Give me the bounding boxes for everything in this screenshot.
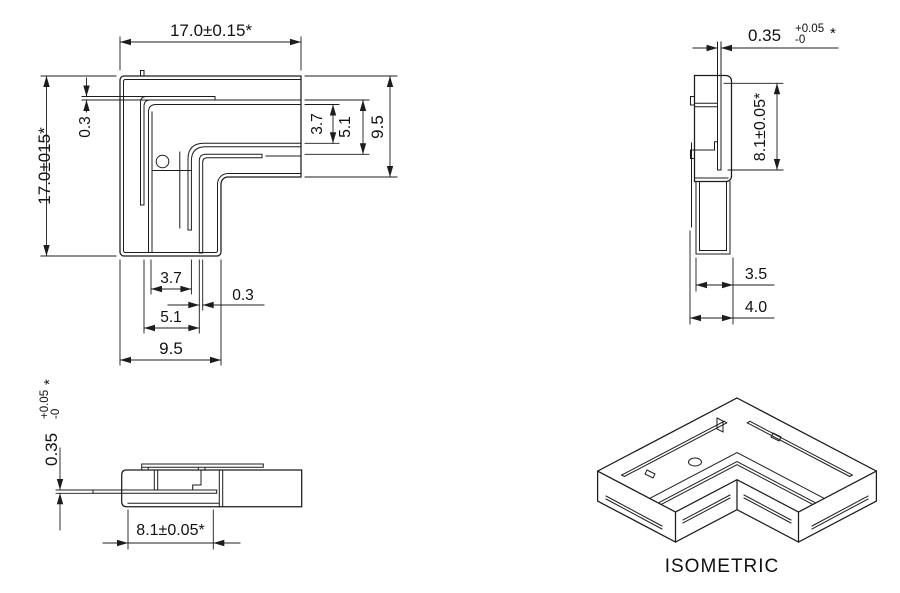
dim-front-bottom-slot: 0.3 (232, 287, 254, 304)
iso-mounting-hole (689, 458, 702, 466)
inner-wall-lines (149, 105, 302, 253)
arrowhead (43, 76, 49, 87)
arrowhead (722, 282, 733, 288)
arrowhead (57, 493, 63, 504)
arrowhead (774, 83, 780, 94)
dim-front-bottom-mid: 5.1 (160, 309, 182, 326)
arrowhead (696, 282, 707, 288)
mounting-hole (156, 155, 169, 168)
arrowhead (290, 39, 301, 45)
bottom-part-outline (122, 470, 302, 507)
arrowhead (330, 132, 336, 143)
dim-side-pin-star: * (830, 25, 836, 42)
dim-front-bottom-outer: 9.5 (159, 339, 183, 358)
iso-silhouette (598, 398, 877, 542)
arrowhead (57, 479, 63, 490)
arrowhead (360, 143, 366, 154)
dim-bottom-pin: 0.35 +0.05 -0 * (39, 379, 62, 466)
arrowhead (774, 159, 780, 170)
arrowhead (213, 540, 224, 546)
dim-front-width-top: 17.0±0.15* (170, 21, 253, 40)
arrowhead (43, 245, 49, 256)
arrowhead (330, 105, 336, 116)
arrowhead (188, 302, 199, 308)
arrowhead (360, 100, 366, 111)
bottom-view: 0.35 +0.05 -0 * 8.1±0.05* (39, 379, 302, 549)
dim-bottom-pin-tol-minus: -0 (50, 409, 62, 419)
arrowhead (83, 86, 89, 97)
arrowhead (387, 76, 393, 87)
arrowhead (203, 302, 214, 308)
front-view: 17.0±0.15* 17.0±015* 0.3 3.7 5.1 9.5 3.7… (35, 21, 397, 365)
side-part-details (691, 42, 731, 254)
side-view: 0.35 +0.05 -0 * 8.1±0.05* 3.5 4.0 (690, 23, 838, 324)
bottom-extension-lines (56, 490, 213, 549)
iso-top-edges (598, 471, 877, 542)
arrowhead (210, 357, 221, 363)
arrowhead (144, 325, 155, 331)
part-outline (120, 76, 301, 256)
dim-front-slot-left: 0.3 (77, 116, 94, 138)
arrowhead (721, 45, 732, 51)
arrowhead (180, 286, 191, 292)
engineering-drawing: 17.0±0.15* 17.0±015* 0.3 3.7 5.1 9.5 3.7… (0, 0, 900, 593)
dim-front-right-inner: 3.7 (309, 113, 326, 135)
front-arrowheads (43, 39, 393, 363)
arrowhead (83, 100, 89, 111)
arrowhead (707, 45, 718, 51)
isometric-view: ISOMETRIC (598, 398, 877, 577)
dim-side-width-inner: 3.5 (745, 266, 767, 283)
dim-front-height-left: 17.0±015* (35, 127, 54, 205)
side-extension-lines (690, 83, 783, 324)
arrowhead (690, 315, 701, 321)
corner-slot-lines (180, 152, 301, 253)
dim-front-right-mid: 5.1 (337, 116, 354, 138)
arrowhead (120, 357, 131, 363)
arrowhead (188, 325, 199, 331)
dim-front-bottom-inner: 3.7 (160, 270, 182, 287)
arrowhead (722, 315, 733, 321)
isometric-label: ISOMETRIC (665, 556, 780, 577)
front-extension-lines (41, 37, 397, 365)
dim-front-right-outer: 9.5 (368, 115, 387, 139)
dim-side-pin-tol-minus: -0 (795, 34, 805, 46)
arrowhead (120, 39, 131, 45)
dim-bottom-pin-star: * (41, 379, 58, 385)
dim-side-height: 8.1±0.05* (752, 93, 769, 161)
dim-bottom-pin-value: 0.35 (42, 433, 61, 466)
dim-bottom-width: 8.1±0.05* (136, 522, 204, 539)
side-part-outline (695, 76, 732, 182)
arrowhead (387, 166, 393, 177)
dim-side-width-outer: 4.0 (745, 299, 767, 316)
front-dimension-lines (47, 42, 391, 360)
engineering-drawing-page: 17.0±0.15* 17.0±015* 0.3 3.7 5.1 9.5 3.7… (0, 0, 900, 593)
arrowhead (117, 540, 128, 546)
dim-side-pin-value: 0.35 (748, 26, 781, 45)
part-inner-contour (124, 80, 302, 253)
